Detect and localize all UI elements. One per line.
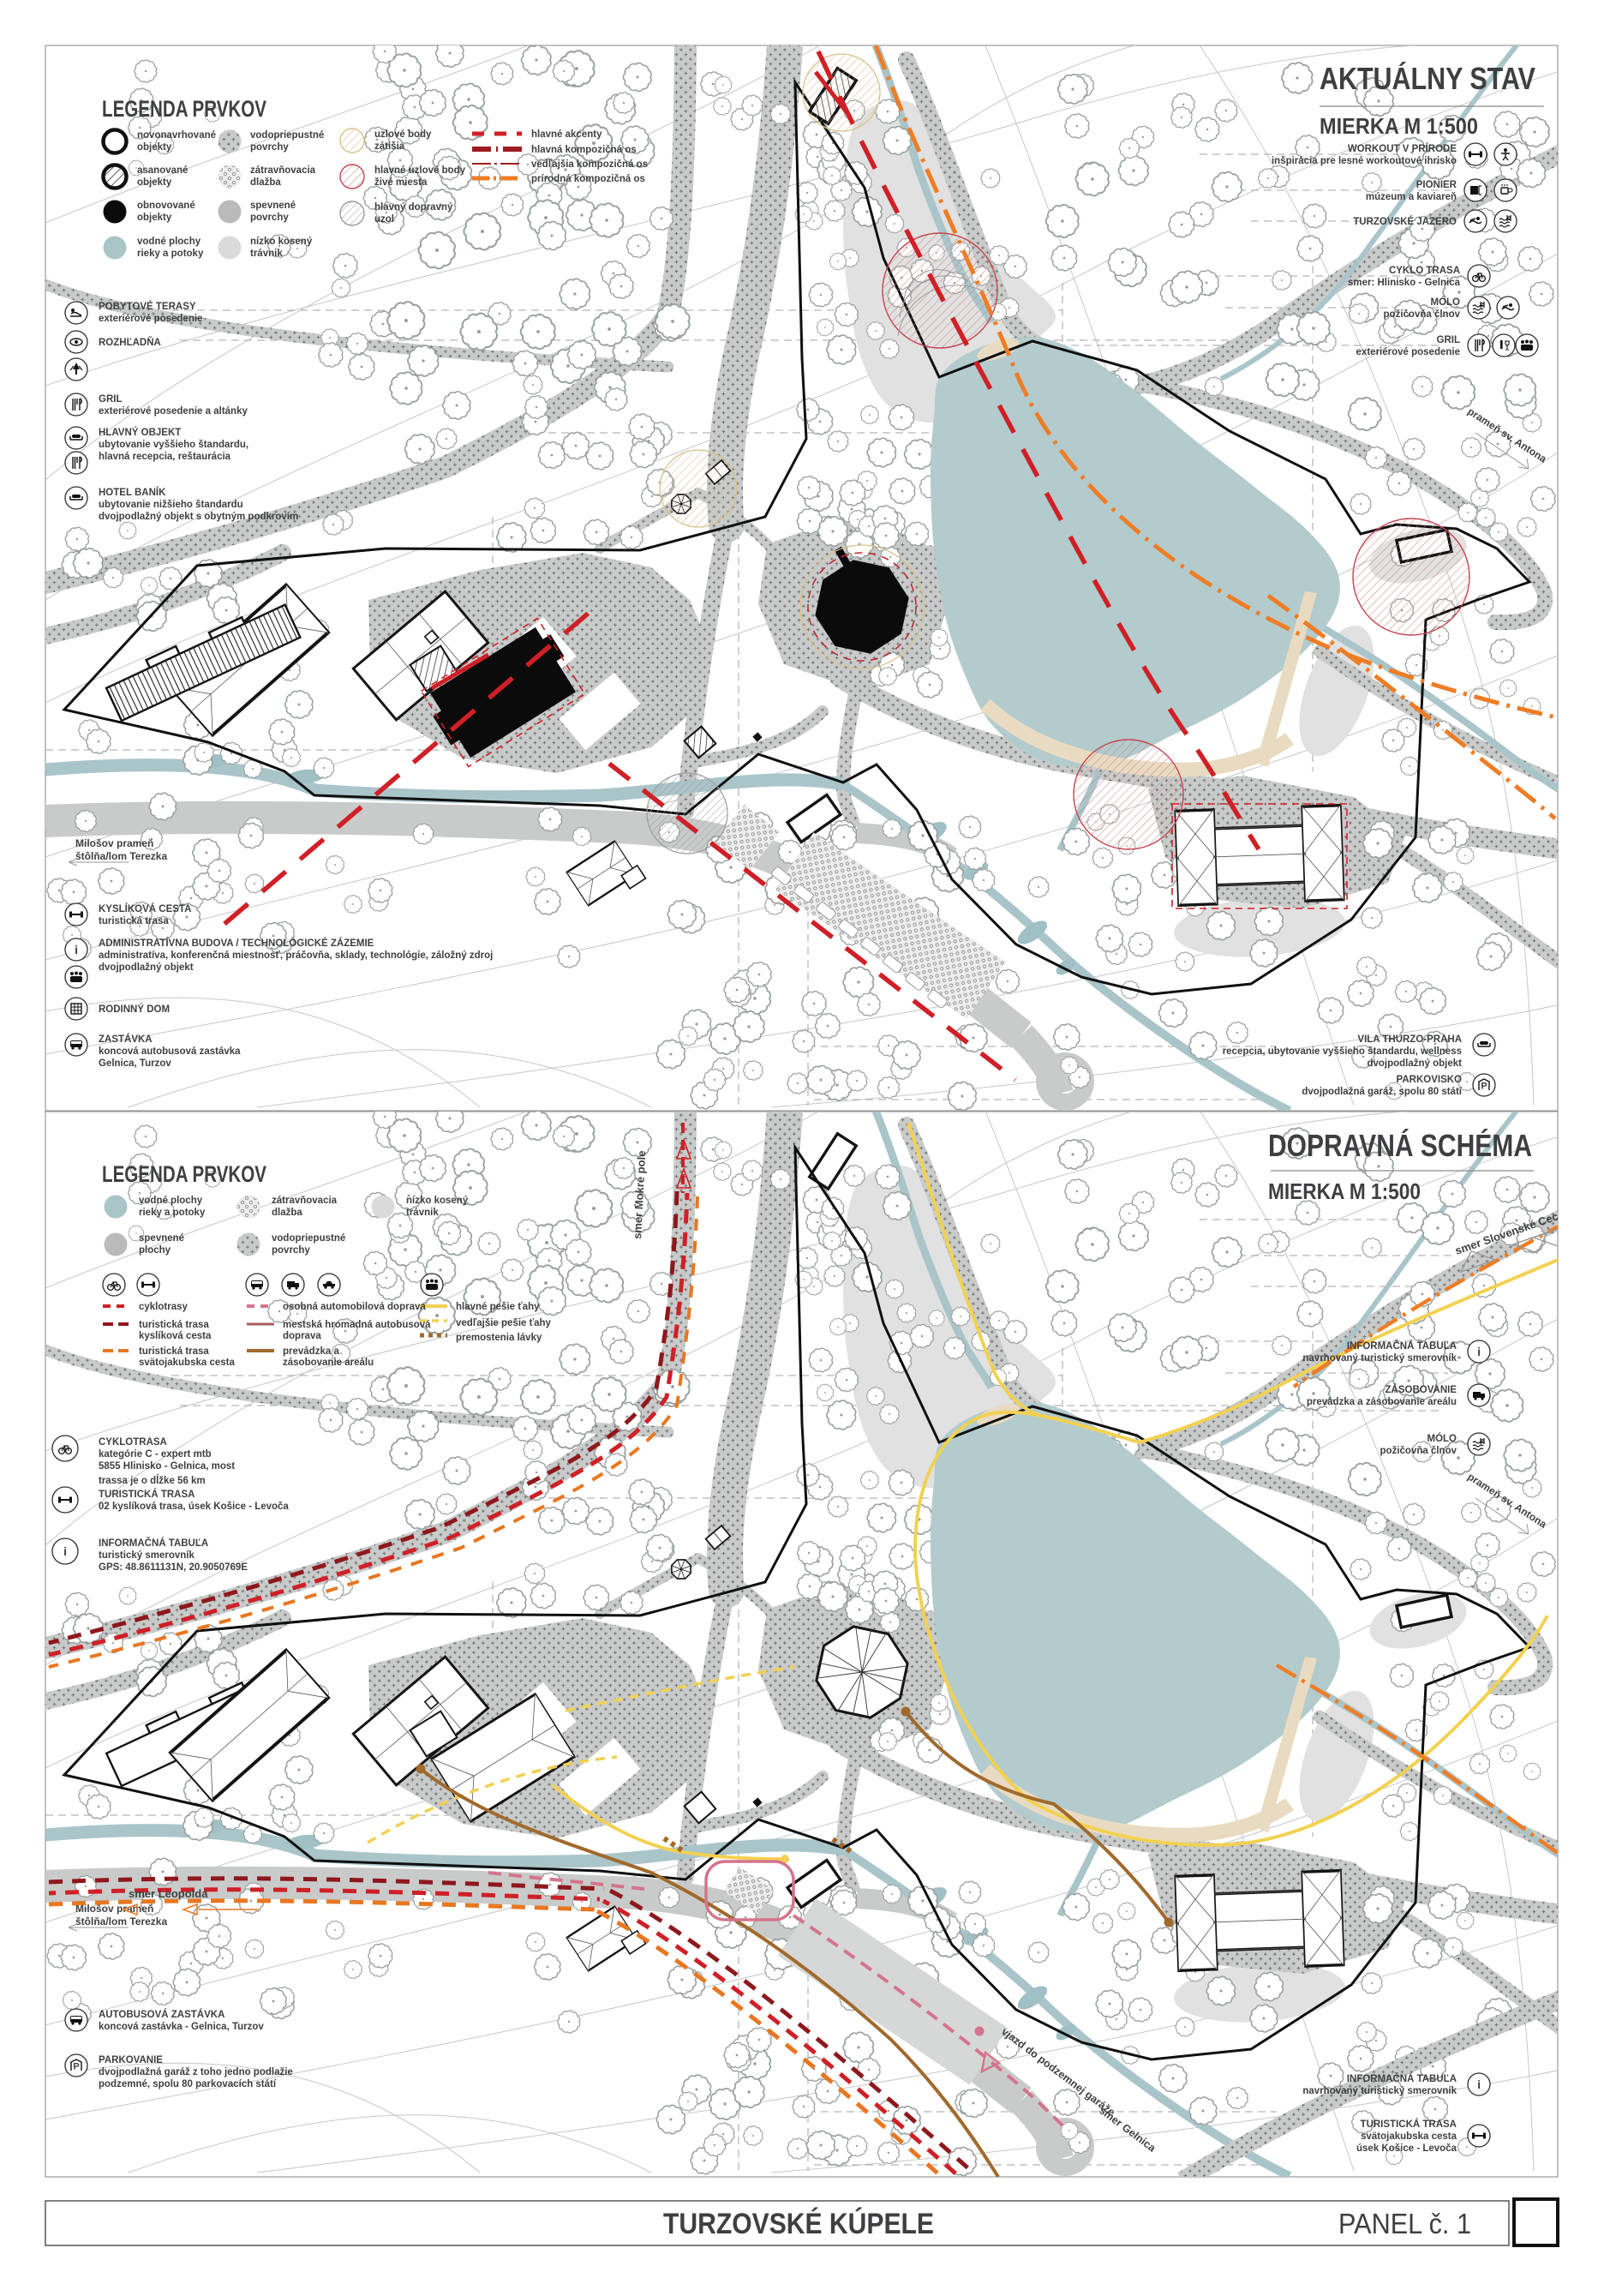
svg-text:AUTOBUSOVÁ ZASTÁVKA: AUTOBUSOVÁ ZASTÁVKA (99, 2009, 224, 2020)
svg-text:požičovňa člnov: požičovňa člnov (1384, 309, 1461, 320)
svg-text:MIERKA M 1:500: MIERKA M 1:500 (1320, 113, 1478, 139)
svg-text:trassa je o dĺžke 56 km: trassa je o dĺžke 56 km (99, 1474, 206, 1486)
svg-text:PANEL č. 1: PANEL č. 1 (1338, 2208, 1471, 2239)
svg-text:koncová zastávka - Gelnica, Tu: koncová zastávka - Gelnica, Turzov (99, 2022, 264, 2032)
svg-text:zátravňovacia: zátravňovacia (272, 1196, 338, 1206)
svg-text:turistická trasa: turistická trasa (139, 1320, 209, 1330)
svg-text:turistická trasa: turistická trasa (139, 1346, 209, 1357)
svg-text:TURISTICKÁ TRASA: TURISTICKÁ TRASA (99, 1489, 195, 1500)
svg-text:dlažba: dlažba (272, 1208, 302, 1218)
svg-text:premostenia lávky: premostenia lávky (456, 1333, 542, 1343)
svg-text:TURZOVSKÉ KÚPELE: TURZOVSKÉ KÚPELE (663, 2208, 934, 2240)
svg-text:prevádzka a zásobovanie areálu: prevádzka a zásobovanie areálu (1307, 1397, 1457, 1407)
svg-text:nízko kosený: nízko kosený (250, 237, 313, 247)
svg-text:navrhovaný turistický smerovní: navrhovaný turistický smerovník (1302, 2086, 1457, 2096)
svg-text:novonavrhované: novonavrhované (137, 130, 216, 141)
svg-text:ZÁSOBOVANIE: ZÁSOBOVANIE (1386, 1384, 1457, 1395)
svg-text:i: i (1477, 2077, 1481, 2091)
svg-text:zátišia: zátišia (374, 141, 405, 152)
svg-text:smer Leopolda: smer Leopolda (129, 1887, 208, 1900)
svg-text:administratíva, konferenčná mi: administratíva, konferenčná miestnosť, p… (99, 950, 493, 961)
svg-text:dvojpodlažná garáž z toho jedn: dvojpodlažná garáž z toho jedno podlažie (99, 2067, 293, 2077)
svg-text:PARKOVISKO: PARKOVISKO (1397, 1075, 1463, 1085)
svg-text:vodopriepustné: vodopriepustné (250, 130, 324, 141)
svg-text:asanované: asanované (137, 165, 188, 176)
svg-text:rieky a potoky: rieky a potoky (137, 249, 204, 259)
svg-text:hlavná kompozičná os: hlavná kompozičná os (531, 145, 637, 155)
svg-text:spevnené: spevnené (139, 1233, 184, 1244)
svg-text:trávnik: trávnik (406, 1208, 439, 1218)
svg-text:hlavná recepcia, reštaurácia: hlavná recepcia, reštaurácia (99, 452, 231, 462)
svg-text:uzol: uzol (374, 214, 394, 225)
svg-text:doprava: doprava (283, 1331, 321, 1341)
svg-text:P: P (73, 2062, 79, 2072)
svg-text:Gelnica, Turzov: Gelnica, Turzov (99, 1058, 171, 1069)
svg-text:prírodná kompozičná os: prírodná kompozičná os (531, 174, 645, 184)
svg-text:i: i (63, 1544, 67, 1558)
svg-text:vodné plochy: vodné plochy (137, 237, 201, 247)
svg-text:povrchy: povrchy (250, 213, 289, 223)
svg-text:VILA THURZO-PRAHA: VILA THURZO-PRAHA (1357, 1034, 1462, 1045)
svg-text:dvojpodlažná garáž, spolu 80 s: dvojpodlažná garáž, spolu 80 státí (1302, 1087, 1462, 1097)
svg-text:objekty: objekty (137, 213, 172, 223)
svg-text:múzeum a kaviareň: múzeum a kaviareň (1366, 192, 1457, 202)
svg-text:MÓLO: MÓLO (1431, 297, 1461, 308)
svg-text:PARKOVANIE: PARKOVANIE (99, 2055, 163, 2065)
svg-text:nízko kosený: nízko kosený (406, 1196, 469, 1206)
svg-text:zátravňovacia: zátravňovacia (250, 165, 316, 176)
svg-text:GPS: 48.8611131N, 20.9050769E: GPS: 48.8611131N, 20.9050769E (99, 1562, 248, 1573)
svg-text:KYSLÍKOVÁ CESTA: KYSLÍKOVÁ CESTA (99, 903, 191, 914)
svg-text:hlavné uzlové body: hlavné uzlové body (374, 165, 466, 176)
svg-text:živé miesta: živé miesta (374, 177, 428, 188)
svg-text:povrchy: povrchy (250, 142, 289, 153)
svg-text:uzlové body: uzlové body (374, 129, 432, 140)
svg-text:TURZOVSKÉ JAZERO: TURZOVSKÉ JAZERO (1353, 216, 1457, 227)
svg-text:MIERKA M 1:500: MIERKA M 1:500 (1268, 1178, 1421, 1204)
svg-text:vedľajšie pešie ťahy: vedľajšie pešie ťahy (456, 1318, 552, 1328)
svg-text:vodopriepustné: vodopriepustné (272, 1233, 345, 1244)
svg-text:hlavné pešie ťahy: hlavné pešie ťahy (456, 1302, 540, 1312)
svg-text:exteriérové posedenie: exteriérové posedenie (1356, 347, 1460, 357)
svg-text:smer: Hlinisko - Gelnica: smer: Hlinisko - Gelnica (1348, 278, 1461, 288)
svg-text:dvojpodlažný objekt: dvojpodlažný objekt (99, 962, 194, 973)
svg-text:INFORMAČNÁ TABUĽA: INFORMAČNÁ TABUĽA (1347, 1340, 1457, 1352)
svg-text:INFORMAČNÁ TABUĽA: INFORMAČNÁ TABUĽA (1347, 2073, 1457, 2084)
svg-text:zásobovanie areálu: zásobovanie areálu (283, 1358, 374, 1368)
svg-text:02 kyslíková trasa, úsek Košic: 02 kyslíková trasa, úsek Košice - Levoča (99, 1502, 289, 1512)
svg-text:HOTEL BANÍK: HOTEL BANÍK (99, 487, 166, 498)
svg-text:mestská hromadná autobusová: mestská hromadná autobusová (283, 1320, 431, 1330)
svg-text:turistický smerovník: turistický smerovník (99, 1550, 195, 1561)
svg-text:úsek Košice - Levoča: úsek Košice - Levoča (1356, 2143, 1457, 2154)
svg-text:obnovované: obnovované (137, 201, 195, 211)
svg-text:dvojpodlažný objekt: dvojpodlažný objekt (1367, 1058, 1462, 1069)
svg-text:GRIL: GRIL (1437, 335, 1460, 345)
svg-text:svätojakubska cesta: svätojakubska cesta (1361, 2131, 1457, 2142)
svg-text:turistická trasa: turistická trasa (99, 916, 169, 926)
svg-text:P: P (1481, 1082, 1487, 1092)
svg-text:koncová autobusová zastávka: koncová autobusová zastávka (99, 1046, 241, 1057)
svg-text:plochy: plochy (139, 1245, 171, 1256)
svg-text:objekty: objekty (137, 142, 172, 153)
svg-text:ADMINISTRATÍVNA BUDOVA / TECHN: ADMINISTRATÍVNA BUDOVA / TECHNOLOGICKÉ Z… (99, 938, 374, 949)
svg-text:rieky a potoky: rieky a potoky (139, 1208, 206, 1218)
svg-text:kategórie C - expert mtb: kategórie C - expert mtb (99, 1449, 212, 1460)
svg-text:ubytovanie nižšieho štandardu: ubytovanie nižšieho štandardu (99, 500, 243, 510)
svg-text:5855 Hlinisko - Gelnica, most: 5855 Hlinisko - Gelnica, most (99, 1461, 235, 1472)
svg-text:podzemné, spolu 80 parkovacíc: podzemné, spolu 80 parkovacích státí (99, 2079, 277, 2089)
svg-text:osobná automobilová doprava: osobná automobilová doprava (283, 1302, 426, 1312)
svg-text:HLAVNÝ OBJEKT: HLAVNÝ OBJEKT (99, 427, 181, 438)
svg-text:povrchy: povrchy (272, 1245, 310, 1256)
svg-text:hlavné akcenty: hlavné akcenty (531, 129, 602, 140)
svg-text:PIONIER: PIONIER (1416, 180, 1457, 190)
svg-text:inšpirácia pre lesné workoutov: inšpirácia pre lesné workoutové ihrisko (1272, 156, 1457, 166)
svg-text:ROZHĽADŇA: ROZHĽADŇA (99, 337, 161, 348)
svg-text:WORKOUT V PRÍRODE: WORKOUT V PRÍRODE (1348, 143, 1457, 154)
svg-text:CYKLOTRASA: CYKLOTRASA (99, 1437, 167, 1448)
svg-text:cyklotrasy: cyklotrasy (139, 1302, 189, 1312)
svg-text:exteriérové posedenie a altánk: exteriérové posedenie a altánky (99, 406, 248, 417)
svg-text:dvojpodlažný objekt s obytným: dvojpodlažný objekt s obytným podkrovím (99, 512, 298, 522)
svg-text:ubytovanie vyššieho štandardu,: ubytovanie vyššieho štandardu, (99, 440, 248, 450)
svg-text:trávnik: trávnik (250, 249, 283, 259)
svg-text:RODINNÝ DOM: RODINNÝ DOM (99, 1004, 170, 1015)
svg-text:hlavný dopravný: hlavný dopravný (374, 202, 453, 213)
svg-text:GRIL: GRIL (99, 394, 122, 405)
svg-text:i: i (1477, 1345, 1481, 1358)
svg-text:kyslíková cesta: kyslíková cesta (139, 1331, 212, 1341)
svg-text:AKTUÁLNY STAV: AKTUÁLNY STAV (1320, 61, 1535, 96)
svg-text:TURISTICKÁ TRASA: TURISTICKÁ TRASA (1361, 2119, 1457, 2130)
svg-text:DOPRAVNÁ SCHÉMA: DOPRAVNÁ SCHÉMA (1268, 1128, 1532, 1163)
svg-text:svätojakubska cesta: svätojakubska cesta (139, 1358, 235, 1368)
svg-text:LEGENDA PRVKOV: LEGENDA PRVKOV (102, 96, 266, 122)
svg-text:exteriérové posedenie: exteriérové posedenie (99, 314, 202, 324)
svg-text:POBYTOVÉ TERASY: POBYTOVÉ TERASY (99, 301, 196, 312)
svg-text:LEGENDA PRVKOV: LEGENDA PRVKOV (102, 1161, 266, 1187)
svg-text:MÓLO: MÓLO (1427, 1433, 1457, 1444)
svg-text:ZASTÁVKA: ZASTÁVKA (99, 1034, 153, 1045)
svg-text:vedľajšia kompozičná os: vedľajšia kompozičná os (531, 159, 648, 170)
svg-text:požičovňa člnov: požičovňa člnov (1380, 1446, 1457, 1456)
svg-text:prevádzka a: prevádzka a (283, 1346, 339, 1357)
svg-text:spevnené: spevnené (250, 201, 296, 211)
svg-text:recepcia, ubytovanie vyššieho: recepcia, ubytovanie vyššieho štandardu,… (1223, 1046, 1462, 1057)
svg-text:vodné plochy: vodné plochy (139, 1196, 203, 1206)
svg-text:dlažba: dlažba (250, 177, 281, 188)
svg-text:objekty: objekty (137, 177, 172, 188)
svg-text:navrhovaný turistický smerovní: navrhovaný turistický smerovník (1302, 1353, 1457, 1364)
svg-text:INFORMAČNÁ TABUĽA: INFORMAČNÁ TABUĽA (99, 1538, 208, 1549)
svg-text:CYKLO TRASA: CYKLO TRASA (1389, 266, 1460, 276)
svg-text:i: i (75, 943, 78, 956)
